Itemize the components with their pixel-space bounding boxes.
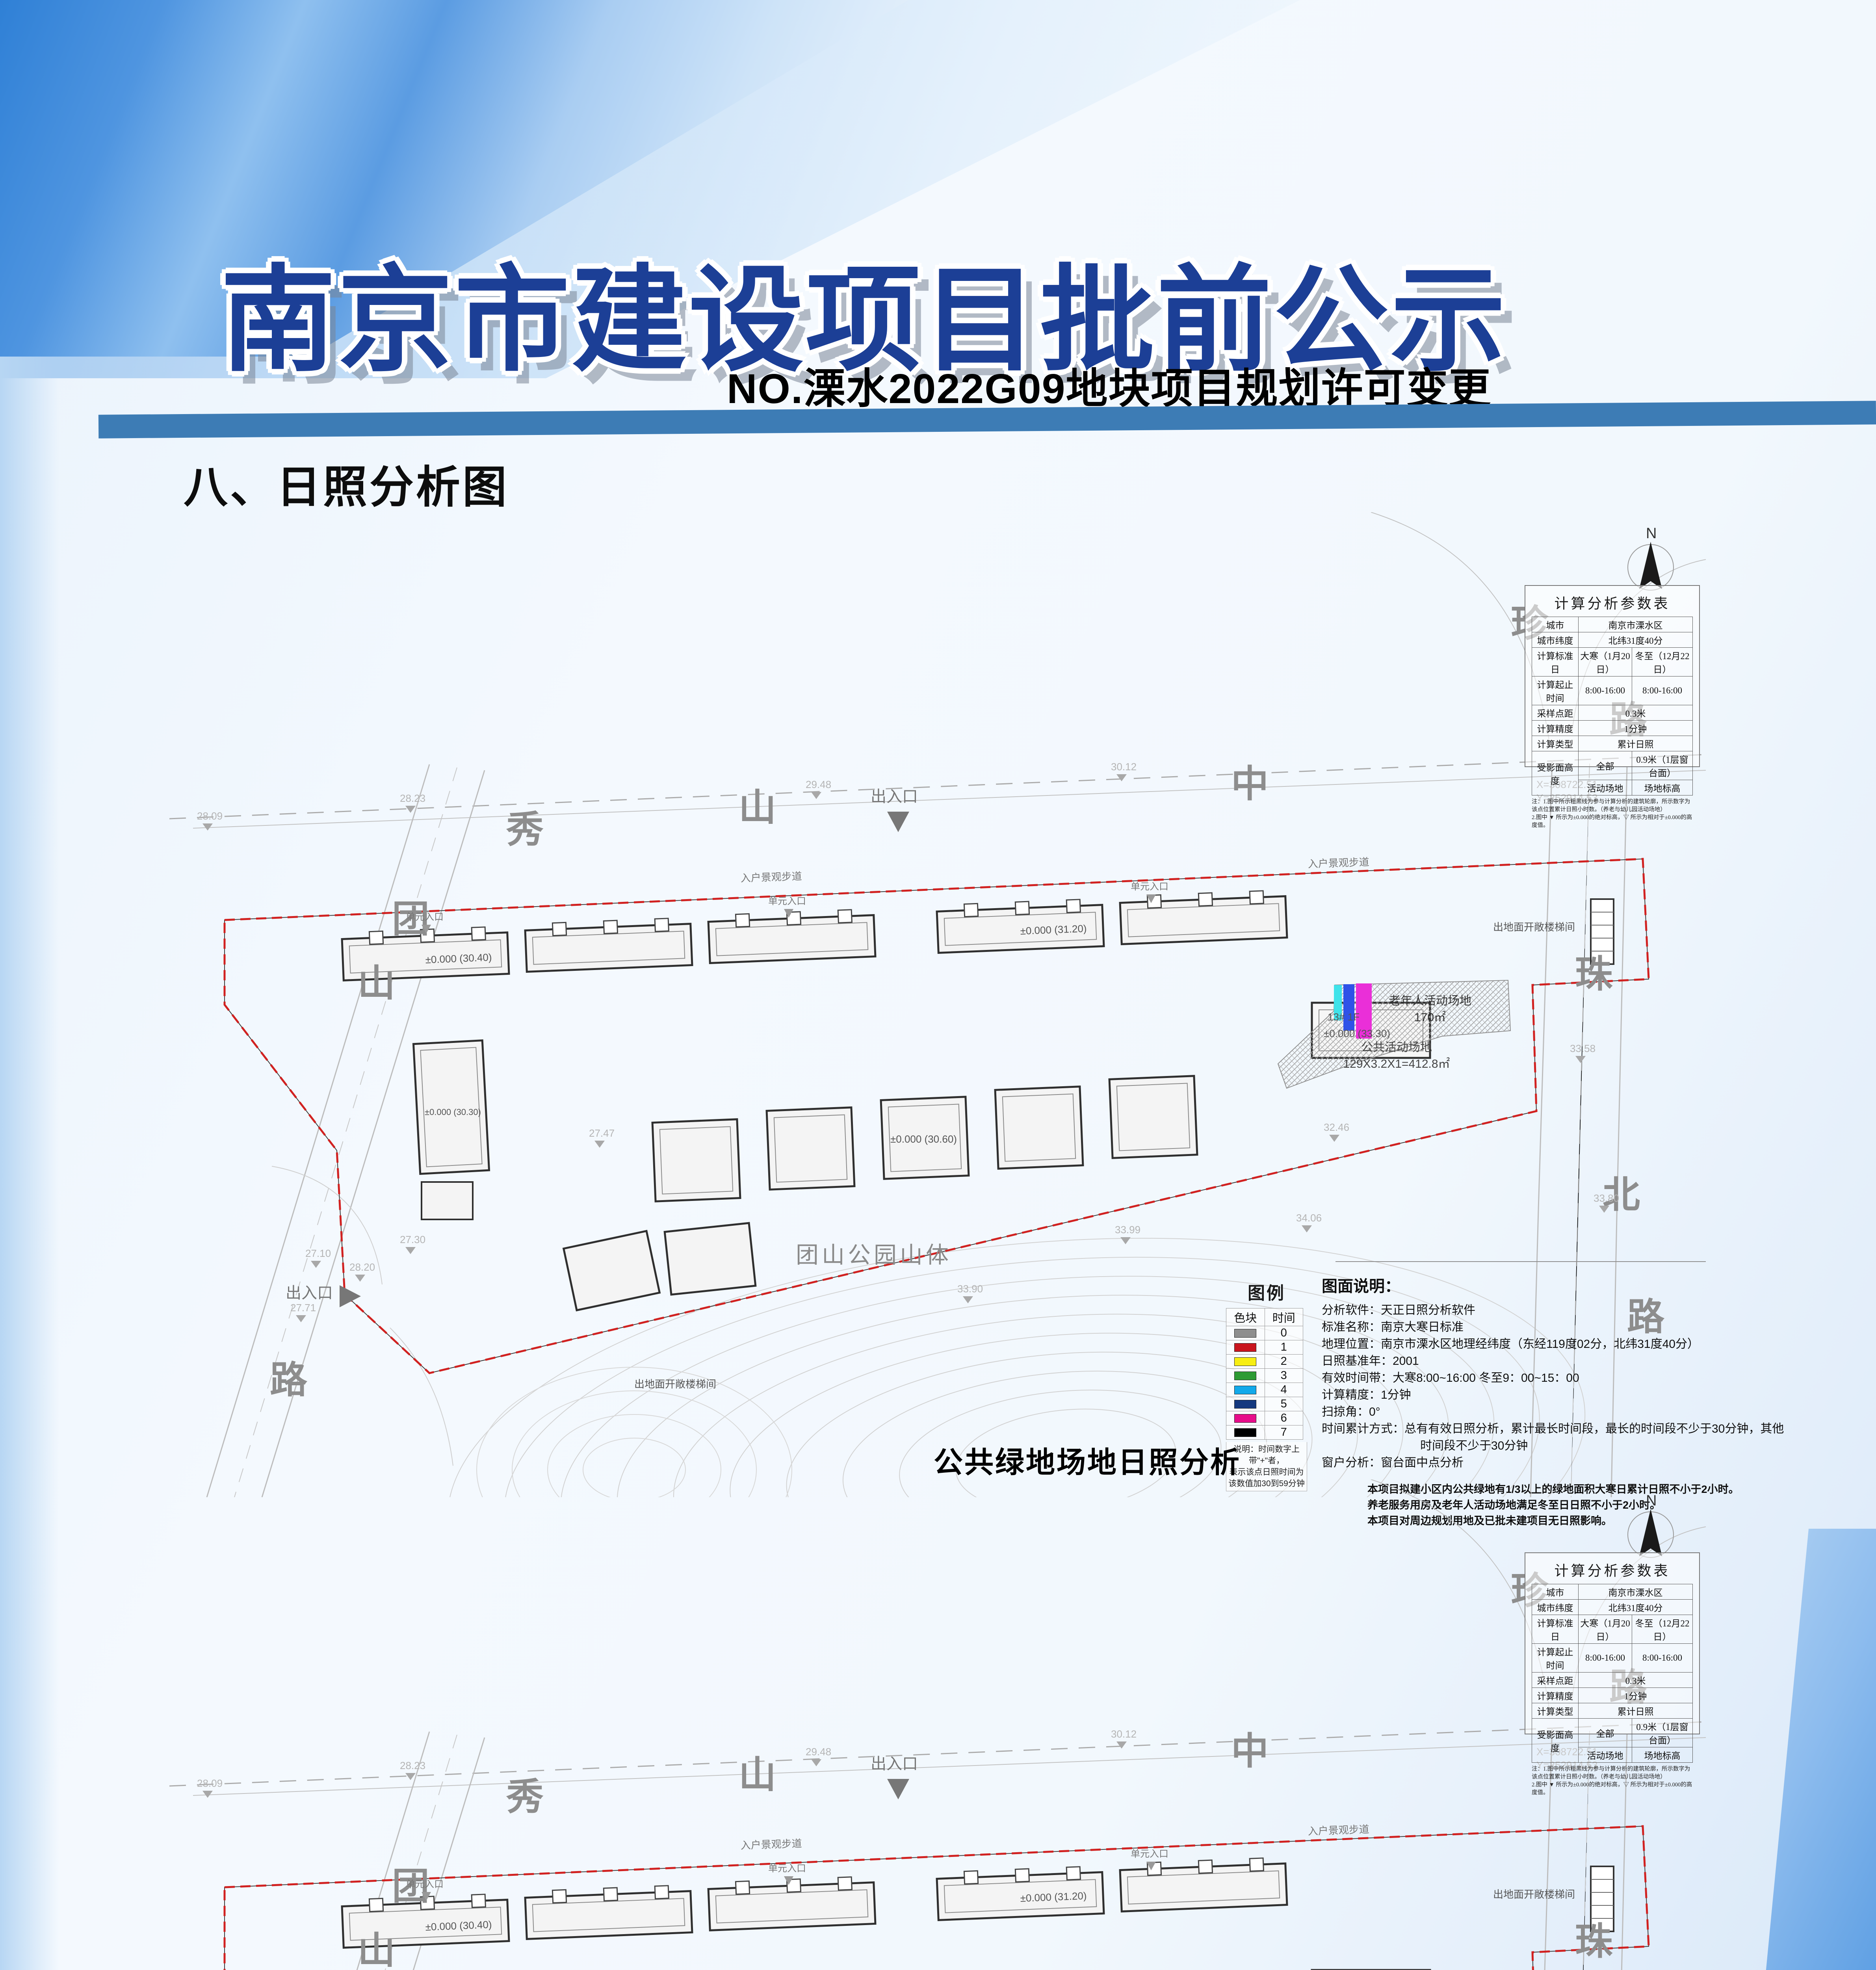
site-label-unit-entry: 单元入口 [768, 896, 806, 907]
elevation-marker [202, 1791, 213, 1798]
parameter-table-notes: 注：1.图中所示粗黑线为参与计算分析的建筑轮廓，所示数字为该点位置累计日照小时数… [1532, 1765, 1693, 1797]
param-row: 计算精度1分钟 [1532, 1688, 1693, 1703]
map-shape [1250, 891, 1263, 904]
map-shape [838, 910, 852, 923]
legend-row: 5 [1226, 1397, 1303, 1411]
legend-row: 0 [1226, 1326, 1303, 1340]
elevation-marker [963, 1296, 973, 1303]
elevation-marker [355, 1275, 365, 1282]
param-row: 计算起止时间8:00-16:008:00-16:00 [1532, 1644, 1693, 1673]
description-item: 日照基准年：2001 [1322, 1353, 1739, 1370]
param-label: 计算精度 [1532, 1688, 1579, 1703]
description-items: 分析软件：天正日照分析软件标准名称：南京大寒日标准地理位置：南京市溧水区地理经纬… [1322, 1302, 1739, 1471]
map-shape [736, 1881, 749, 1894]
legend-swatch-cell [1226, 1397, 1265, 1411]
map-shape [995, 1087, 1083, 1169]
highlight-value-1: 170㎡ [1414, 1011, 1446, 1024]
param-row: 计算精度1分钟 [1532, 721, 1693, 736]
legend-hours-value: 4 [1265, 1383, 1303, 1397]
map-shape [472, 1894, 485, 1907]
entrance-arrow-right [340, 1285, 361, 1307]
map-shape [964, 1871, 978, 1884]
param-value: 全部 [1579, 1719, 1632, 1747]
legend-color-swatch [1234, 1386, 1256, 1394]
param-row: 受影面高度全部0.9米（1层窗台面） [1532, 1719, 1693, 1747]
param-row: 计算类型累计日照 [1532, 1703, 1693, 1719]
param-row: 受影面高度全部0.9米（1层窗台面） [1532, 751, 1693, 780]
param-value: 场地标高 [1632, 780, 1693, 795]
param-value: 累计日照 [1579, 736, 1693, 751]
legend-col-block: 色块 [1226, 1308, 1265, 1326]
site-label-path: 入户景观步道 [1308, 1823, 1369, 1837]
map-shape [1198, 893, 1212, 906]
sun-band-blue [1343, 984, 1354, 1031]
park-label: 团山公园山体 [796, 1242, 952, 1268]
section-title: 八、日照分析图 [184, 452, 509, 515]
road-char-shan_top: 山 [739, 787, 776, 829]
elevation-marker [811, 792, 821, 799]
map-shape [422, 1182, 473, 1219]
legend-hours-value: 1 [1265, 1340, 1303, 1355]
entrance-label-left: 出入口 [286, 1284, 333, 1302]
legend-swatch-cell [1226, 1383, 1265, 1397]
param-value: 0.9米（1层窗台面） [1632, 1719, 1693, 1747]
param-row: 城市纬度北纬31度40分 [1532, 1600, 1693, 1615]
road-char-zhu: 珠 [1575, 1921, 1613, 1963]
elevation-marker [811, 1759, 821, 1766]
road-char-shan_left: 山 [358, 963, 395, 1004]
elevation-value: 33.90 [957, 1283, 983, 1295]
map-shape [665, 1223, 756, 1295]
map-shape [169, 1722, 1706, 1786]
elevation-marker [1116, 1741, 1127, 1749]
elevation-value: 27.47 [589, 1127, 615, 1139]
map-shape [736, 914, 749, 927]
param-value: 8:00-16:00 [1632, 676, 1693, 705]
elevation-value: 30.12 [1111, 1728, 1137, 1740]
description-item: 有效时间带：大寒8:00~16:00 冬至9：00~15：00 [1322, 1370, 1739, 1386]
param-row: 计算标准日大寒（1月20日）冬至（12月22日） [1532, 1615, 1693, 1644]
param-value: 活动场地 [1579, 1747, 1632, 1763]
site-boundary-red [225, 1826, 1649, 1970]
map-shape [564, 1231, 660, 1310]
elevation-value: 34.06 [1296, 1212, 1322, 1224]
site-label-path: 入户景观步道 [740, 1838, 802, 1851]
param-note-line: 2.图中 ▼ 所示为±0.000的绝对标高，▽ 所示为相对于±0.000的高度值… [1532, 814, 1693, 829]
description-item: 计算精度：1分钟 [1322, 1386, 1739, 1403]
map-shape [604, 1888, 617, 1901]
legend-color-swatch [1234, 1357, 1256, 1366]
road-char-shan_left: 山 [358, 1930, 395, 1970]
map-shape [472, 927, 485, 940]
building-slab [525, 918, 692, 972]
site-label-stair: 出地面开敞楼梯间 [1493, 1888, 1575, 1900]
road-char-xiu: 秀 [506, 1776, 544, 1818]
elevation-value: 28.23 [400, 1760, 425, 1771]
param-row: 城市南京市溧水区 [1532, 617, 1693, 632]
map-shape [1066, 900, 1080, 913]
map-caption: 公共绿地场地日照分析 [934, 1439, 1241, 1481]
building-small [995, 1087, 1083, 1169]
legend-row: 3 [1226, 1369, 1303, 1383]
elevation-value: 27.10 [305, 1247, 331, 1259]
param-value: 1分钟 [1579, 1688, 1693, 1703]
param-label: 采样点距 [1532, 705, 1579, 721]
site-label-path: 入户景观步道 [740, 870, 802, 884]
elevation-value: 28.23 [400, 792, 425, 804]
map-shape [1109, 1076, 1197, 1158]
map-shape [1066, 1867, 1080, 1880]
site-label-path: 入户景观步道 [1308, 856, 1369, 870]
background-band-left [0, 339, 59, 1970]
building-slab [1120, 1857, 1287, 1912]
map-shape [767, 1108, 854, 1189]
map-inner: 老年人活动场地170㎡公共活动场地129X3.2X1=412.8㎡秀山中团山路珍… [169, 512, 1706, 1497]
param-value: 北纬31度40分 [1579, 1600, 1693, 1615]
map-shape [964, 903, 978, 916]
legend-swatch-cell [1226, 1340, 1265, 1355]
highlight-area: 老年人活动场地170㎡公共活动场地129X3.2X1=412.8㎡ [1278, 980, 1510, 1088]
parameter-table-title: 计算分析参数表 [1532, 592, 1693, 613]
legend-swatch-cell [1226, 1369, 1265, 1383]
description-item: 分析软件：天正日照分析软件 [1322, 1302, 1739, 1319]
param-label: 计算标准日 [1532, 1615, 1579, 1644]
param-label: 计算类型 [1532, 1703, 1579, 1719]
building-bottom [665, 1223, 756, 1295]
elevation-marker [405, 1247, 416, 1254]
param-value: 大寒（1月20日） [1579, 1615, 1632, 1644]
legend-color-swatch [1234, 1428, 1256, 1437]
map-shape [655, 1886, 669, 1899]
map-shape [1015, 1869, 1029, 1882]
elevation-value: 33.80 [1594, 1192, 1619, 1204]
description-item: 标准名称：南京大寒日标准 [1322, 1319, 1739, 1336]
legend-row: 1 [1226, 1340, 1303, 1355]
entrance-arrow-down [887, 1779, 909, 1799]
sunlight-map-public-green: 老年人活动场地170㎡公共活动场地129X3.2X1=412.8㎡秀山中团山路珍… [169, 512, 1706, 1497]
param-value: 1分钟 [1579, 721, 1693, 736]
elevation-marker [594, 1141, 605, 1148]
description-item: 时间段不少于30分钟 [1322, 1437, 1739, 1454]
param-value: 8:00-16:00 [1632, 1644, 1693, 1673]
param-value: 8:00-16:00 [1579, 676, 1632, 705]
param-label: 计算类型 [1532, 736, 1579, 751]
legend-hours-value: 7 [1265, 1425, 1303, 1440]
elevation-marker [311, 1261, 321, 1268]
building-slab [708, 1876, 875, 1931]
elevation-marker [1575, 1056, 1586, 1063]
param-row: 计算起止时间8:00-16:008:00-16:00 [1532, 676, 1693, 705]
param-label: 采样点距 [1532, 1673, 1579, 1688]
elevation-marker [405, 806, 416, 813]
site-label-unit-entry: 单元入口 [406, 912, 444, 922]
description-item: 地理位置：南京市溧水区地理经纬度（东经119度02分，北纬31度40分） [1322, 1336, 1739, 1353]
map-shape [169, 755, 1706, 819]
map-shape [655, 918, 669, 931]
map-shape [207, 764, 429, 1497]
map-shape [1198, 1860, 1212, 1873]
road-char-zhong: 中 [1231, 1730, 1269, 1772]
entrance-arrow-down [887, 812, 909, 832]
param-value: 冬至（12月22日） [1632, 648, 1693, 676]
elevation-value: 33.58 [1570, 1043, 1596, 1054]
buildings [342, 890, 1614, 1310]
elevation-marker [1302, 1225, 1312, 1232]
legend-col-time: 时间 [1265, 1308, 1303, 1326]
param-label: 城市纬度 [1532, 1600, 1579, 1615]
road-char-shan_top: 山 [739, 1754, 776, 1796]
legend-row: 7 [1226, 1425, 1303, 1440]
building-bottom [564, 1231, 660, 1310]
legend-swatch-cell [1226, 1355, 1265, 1369]
map-shape [390, 1328, 453, 1466]
param-label: 城市 [1532, 1584, 1579, 1600]
highlight-label-2: 公共活动场地 [1361, 1041, 1432, 1054]
legend-row: 6 [1226, 1411, 1303, 1425]
elevation-value: 30.12 [1111, 761, 1137, 773]
site-label-left_level: ±0.000 (30.30) [425, 1107, 481, 1117]
param-value: 活动场地 [1579, 780, 1632, 795]
legend-hours-value: 2 [1265, 1355, 1303, 1369]
analysis-parameter-table: 计算分析参数表 城市南京市溧水区城市纬度北纬31度40分计算标准日大寒（1月20… [1525, 1552, 1700, 1734]
param-value: 0.3米 [1579, 1673, 1693, 1688]
param-note-line: 注：1.图中所示粗黑线为参与计算分析的建筑轮廓，所示数字为该点位置累计日照小时数… [1532, 798, 1693, 814]
param-row: 城市南京市溧水区 [1532, 1584, 1693, 1600]
site-label-unit-entry: 单元入口 [406, 1879, 444, 1890]
param-row: 计算标准日大寒（1月20日）冬至（12月22日） [1532, 648, 1693, 676]
param-value: 0.9米（1层窗台面） [1632, 751, 1693, 780]
description-item: 时间累计方式：总有有效日照分析，累计最长时间段，最长的时间段不少于30分钟，其他 [1322, 1420, 1739, 1437]
building-small [767, 1108, 854, 1189]
param-value: 全部 [1579, 751, 1632, 780]
legend-color-swatch [1234, 1400, 1256, 1409]
param-value: 大寒（1月20日） [1579, 648, 1632, 676]
site-label-b13_name: 13# 1F [1328, 1011, 1360, 1023]
highlight-value-2: 129X3.2X1=412.8㎡ [1343, 1057, 1450, 1070]
param-label: 受影面高度 [1532, 751, 1579, 795]
sunlight-map-elderly-children: 其中儿童、老年人活动场地170㎡公共活动场地129X3.2X1=412.8㎡秀山… [169, 1479, 1706, 1970]
legend-swatch-cell [1226, 1411, 1265, 1425]
building-small [1109, 1076, 1197, 1158]
road-char-xiu: 秀 [506, 809, 544, 851]
site-label-unit-entry: 单元入口 [768, 1863, 806, 1874]
legend-swatch-cell [1226, 1425, 1265, 1440]
parameter-table-body: 城市南京市溧水区城市纬度北纬31度40分计算标准日大寒（1月20日）冬至（12月… [1532, 617, 1693, 795]
legend-hours-value: 6 [1265, 1411, 1303, 1425]
compass: N [1628, 525, 1674, 590]
legend-row: 4 [1226, 1383, 1303, 1397]
compass-n: N [1646, 525, 1657, 542]
param-label: 计算起止时间 [1532, 676, 1579, 705]
param-note-line: 2.图中 ▼ 所示为±0.000的绝对标高，▽ 所示为相对于±0.000的高度值… [1532, 1781, 1693, 1797]
elevation-value: 29.48 [806, 1746, 831, 1758]
analysis-parameter-table: 计算分析参数表 城市南京市溧水区城市纬度北纬31度40分计算标准日大寒（1月20… [1525, 585, 1700, 767]
public-notice-poster: 南京市建设项目批前公示 NO.溧水2022G09地块项目规划许可变更 八、日照分… [0, 0, 1876, 1970]
legend-hours-value: 3 [1265, 1369, 1303, 1383]
param-value: 南京市溧水区 [1579, 1584, 1693, 1600]
description-item: 窗户分析：窗台面中点分析 [1322, 1454, 1739, 1471]
param-value: 0.3米 [1579, 705, 1693, 721]
param-note-line: 注：1.图中所示粗黑线为参与计算分析的建筑轮廓，所示数字为该点位置累计日照小时数… [1532, 1765, 1693, 1781]
elevation-marker [202, 823, 213, 831]
elevation-value: 28.09 [197, 1777, 223, 1789]
elevation-marker [1116, 774, 1127, 781]
param-label: 城市 [1532, 617, 1579, 632]
map-shape [838, 1877, 852, 1890]
description-item: 扫掠角：0° [1322, 1403, 1739, 1420]
elevation-value: 27.30 [400, 1234, 425, 1245]
legend-color-swatch [1234, 1329, 1256, 1338]
elevation-value: 28.09 [197, 810, 223, 822]
building-small [652, 1119, 740, 1201]
elevation-value: 29.48 [806, 779, 831, 790]
param-value: 场地标高 [1632, 1747, 1693, 1763]
legend-hours-value: 5 [1265, 1397, 1303, 1411]
map-shape [652, 1119, 740, 1201]
elevation-value: 27.71 [290, 1302, 316, 1314]
param-label: 受影面高度 [1532, 1719, 1579, 1763]
map-shape [552, 1890, 566, 1903]
background-band-right [1699, 1529, 1876, 1970]
building-slab [1120, 890, 1287, 944]
map-inner: 其中儿童、老年人活动场地170㎡公共活动场地129X3.2X1=412.8㎡秀山… [169, 1479, 1706, 1970]
elevation-marker [405, 1773, 416, 1780]
legend-color-swatch [1234, 1414, 1256, 1423]
north-arrow [1639, 542, 1662, 589]
param-row: 城市纬度北纬31度40分 [1532, 632, 1693, 648]
elevation-value: 32.46 [1324, 1121, 1349, 1133]
site-label-stair: 出地面开敞楼梯间 [634, 1378, 716, 1390]
road-char-lu_bottom_left: 路 [270, 1359, 308, 1401]
north-arrow [1639, 1509, 1662, 1556]
legend-rows: 01234567 [1226, 1326, 1303, 1440]
map-shape [369, 931, 383, 944]
parameter-table-body: 城市南京市溧水区城市纬度北纬31度40分计算标准日大寒（1月20日）冬至（12月… [1532, 1584, 1693, 1763]
building-slab [708, 909, 875, 963]
param-label: 计算精度 [1532, 721, 1579, 736]
entrance-label-top: 出入口 [871, 1755, 918, 1773]
site-label-row_level: ±0.000 (30.60) [890, 1133, 957, 1145]
road-char-zhu: 珠 [1575, 953, 1613, 995]
site-label-unit-entry: 单元入口 [1131, 881, 1168, 892]
site-plan-drawing: 其中儿童、老年人活动场地170㎡公共活动场地129X3.2X1=412.8㎡秀山… [169, 1479, 1706, 1970]
highlight-label-1: 老年人活动场地 [1389, 994, 1471, 1007]
map-shape [552, 922, 566, 935]
map-shape [1015, 901, 1029, 914]
elevation-value: 33.99 [1115, 1224, 1140, 1236]
param-value: 8:00-16:00 [1579, 1644, 1632, 1673]
entrance-label-top: 出入口 [871, 788, 918, 805]
elevation-marker [1329, 1135, 1339, 1142]
map-shape [604, 920, 617, 933]
parameter-table-title: 计算分析参数表 [1532, 1559, 1693, 1580]
parameter-table-notes: 注：1.图中所示粗黑线为参与计算分析的建筑轮廓，所示数字为该点位置累计日照小时数… [1532, 798, 1693, 829]
elevation-value: 28.20 [349, 1261, 375, 1273]
param-value: 累计日照 [1579, 1703, 1693, 1719]
legend-row: 2 [1226, 1355, 1303, 1369]
compass-n: N [1646, 1492, 1657, 1509]
site-boundary-inner [225, 1826, 1649, 1970]
legend-color-swatch [1234, 1343, 1256, 1352]
road-char-zhong: 中 [1231, 763, 1269, 805]
legend-hours-value: 0 [1265, 1326, 1303, 1340]
param-label: 计算起止时间 [1532, 1644, 1579, 1673]
compass: N [1628, 1492, 1674, 1557]
legend-color-swatch [1234, 1372, 1256, 1380]
param-value: 冬至（12月22日） [1632, 1615, 1693, 1644]
param-label: 城市纬度 [1532, 632, 1579, 648]
site-label-stair: 出地面开敞楼梯间 [1493, 921, 1575, 933]
param-row: 采样点距0.3米 [1532, 705, 1693, 721]
map-shape [1250, 1858, 1263, 1871]
site-label-unit-entry: 单元入口 [1131, 1849, 1168, 1859]
building-slab [525, 1885, 692, 1939]
description-title: 图面说明： [1322, 1273, 1739, 1296]
legend-title: 图例 [1226, 1279, 1307, 1304]
param-value: 南京市溧水区 [1579, 617, 1693, 632]
param-row: 采样点距0.3米 [1532, 1673, 1693, 1688]
param-value: 北纬31度40分 [1579, 632, 1693, 648]
elevation-marker [296, 1315, 306, 1322]
param-label: 计算标准日 [1532, 648, 1579, 676]
legend-swatch-cell [1226, 1326, 1265, 1340]
param-row: 计算类型累计日照 [1532, 736, 1693, 751]
site-label-b13_level: ±0.000 (33.30) [1324, 1028, 1390, 1039]
map-shape [369, 1898, 383, 1911]
elevation-marker [1120, 1237, 1131, 1244]
